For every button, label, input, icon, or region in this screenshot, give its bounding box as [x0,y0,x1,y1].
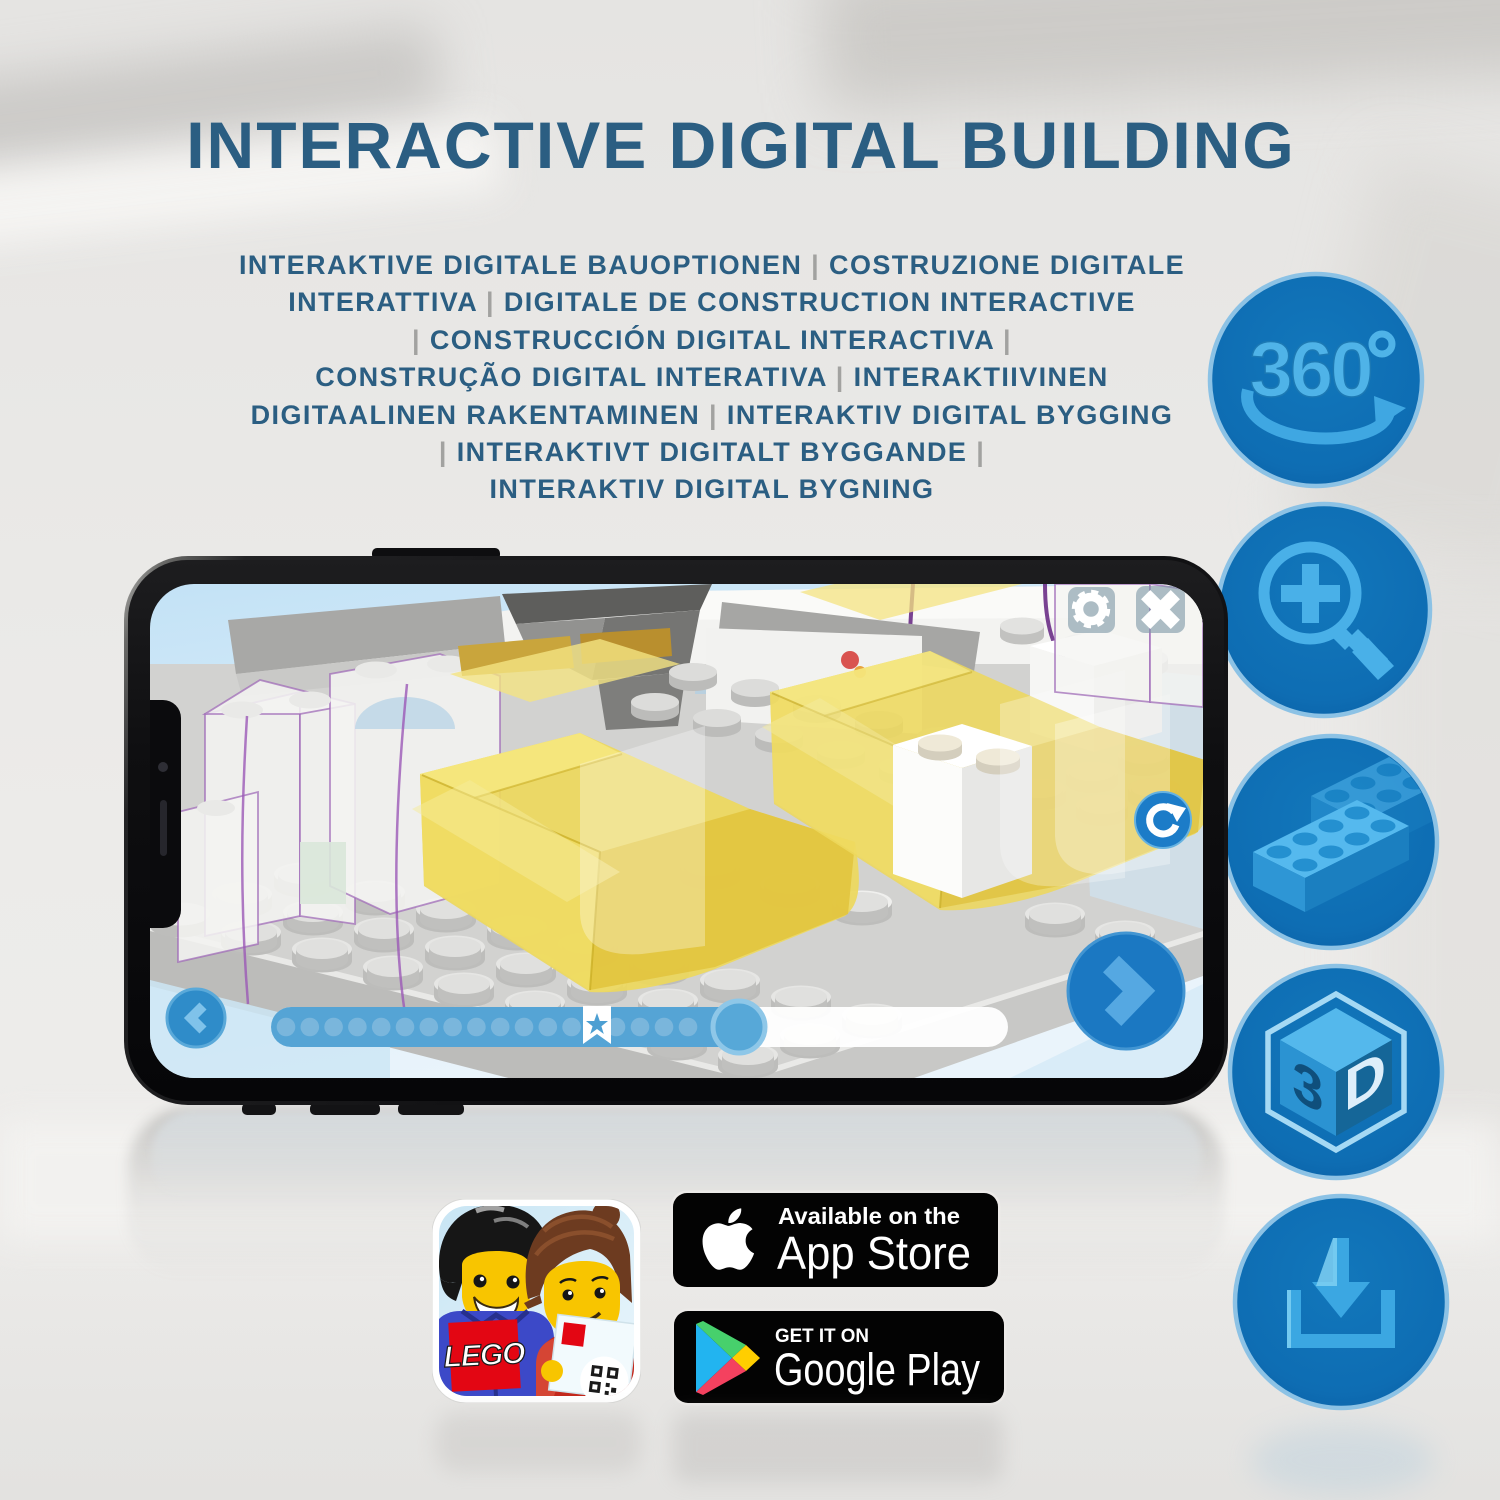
svg-text:LEGO: LEGO [443,1337,526,1374]
svg-text:App Store: App Store [777,1227,971,1279]
svg-text:Available on the: Available on the [778,1203,960,1229]
svg-text:Google Play: Google Play [774,1344,980,1395]
